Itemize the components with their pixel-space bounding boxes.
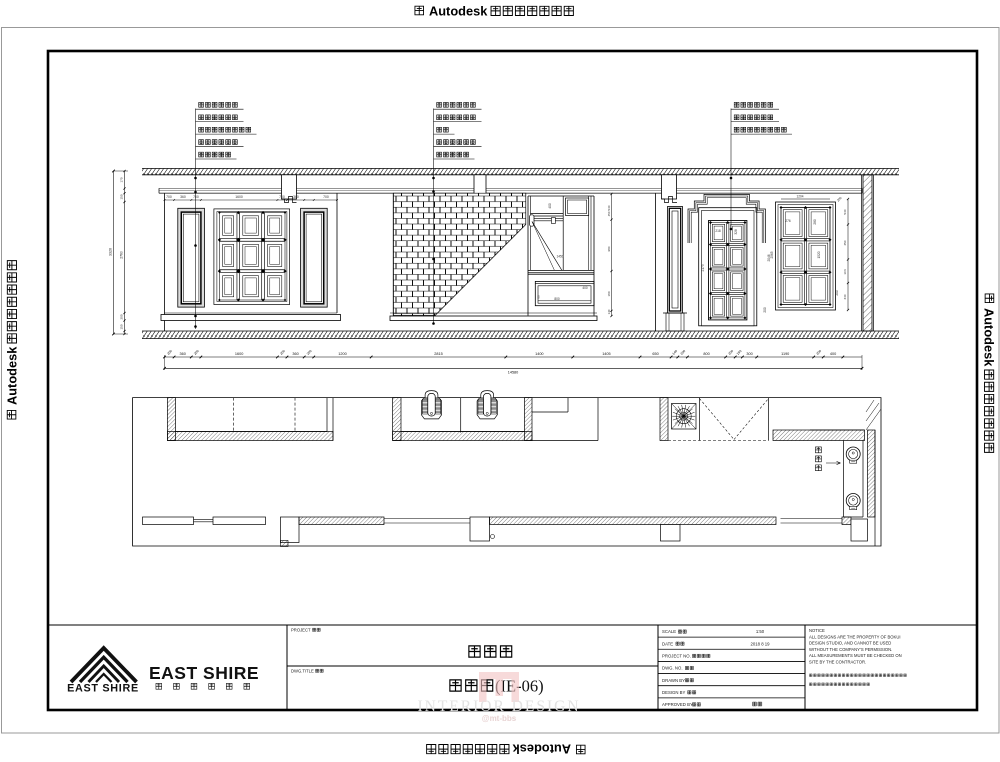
svg-text:200: 200 <box>727 349 734 356</box>
svg-text:200: 200 <box>815 349 822 356</box>
svg-text:DATE: DATE <box>662 641 673 646</box>
svg-text:ALL DESIGNS ARE THE PROPERTY O: ALL DESIGNS ARE THE PROPERTY OF BOKUI <box>809 634 901 639</box>
svg-text:700: 700 <box>166 195 172 199</box>
svg-text:200: 200 <box>835 290 839 296</box>
svg-text:Autodesk: Autodesk <box>5 346 20 405</box>
svg-text:276: 276 <box>785 219 791 223</box>
svg-text:150: 150 <box>120 324 124 329</box>
svg-text:WITHOUT THE COMPANY’S PERMISSI: WITHOUT THE COMPANY’S PERMISSION. <box>809 647 892 652</box>
svg-text:ALL MEASUREMENTS MUST BE CHECK: ALL MEASUREMENTS MUST BE CHECKED ON <box>809 653 902 658</box>
svg-text:218: 218 <box>715 229 721 233</box>
svg-text:150: 150 <box>120 194 124 199</box>
svg-text:700: 700 <box>193 195 199 199</box>
svg-text:1200: 1200 <box>338 352 346 356</box>
svg-text:200: 200 <box>193 349 200 356</box>
svg-text:200: 200 <box>763 307 767 313</box>
svg-text:800: 800 <box>703 352 709 356</box>
svg-text:180: 180 <box>607 291 611 296</box>
svg-text:2760: 2760 <box>120 251 124 259</box>
svg-text:2565: 2565 <box>770 251 774 258</box>
svg-text:1600: 1600 <box>235 352 243 356</box>
svg-text:540: 540 <box>843 209 847 214</box>
svg-text:INTERIOR DESIGN: INTERIOR DESIGN <box>417 698 580 715</box>
svg-text:APPROVED BY: APPROVED BY <box>662 702 693 707</box>
svg-text:1204: 1204 <box>796 195 803 199</box>
svg-text:SCALE: SCALE <box>662 629 676 634</box>
svg-text:650: 650 <box>652 352 658 356</box>
svg-text:400: 400 <box>830 352 836 356</box>
svg-text:1190: 1190 <box>781 352 789 356</box>
svg-text:1520: 1520 <box>817 251 821 258</box>
svg-text:540: 540 <box>607 205 611 210</box>
svg-text:200: 200 <box>166 349 173 356</box>
svg-text:200: 200 <box>836 196 843 203</box>
svg-text:140: 140 <box>671 349 678 356</box>
svg-text:14580: 14580 <box>508 370 519 374</box>
svg-text:980: 980 <box>607 246 611 251</box>
svg-text:PROJECT NO.: PROJECT NO. <box>662 653 691 658</box>
svg-text:300: 300 <box>746 352 752 356</box>
svg-text:2018 8 19: 2018 8 19 <box>750 641 770 646</box>
svg-text:DWG.TITLE: DWG.TITLE <box>291 669 314 674</box>
svg-text:700: 700 <box>323 195 329 199</box>
svg-text:200: 200 <box>680 349 687 356</box>
svg-text:80: 80 <box>537 295 541 299</box>
svg-text:1400: 1400 <box>535 352 543 356</box>
svg-text:Autodesk: Autodesk <box>512 741 571 756</box>
svg-text:DESIGN STUDIO, AND CANNOT BE U: DESIGN STUDIO, AND CANNOT BE USED <box>809 641 891 646</box>
svg-text:200: 200 <box>120 314 124 319</box>
svg-text:2173: 2173 <box>701 264 705 271</box>
svg-text:DWG. NO.: DWG. NO. <box>662 666 683 671</box>
svg-text:SITE BY THE CONTRACTOR.: SITE BY THE CONTRACTOR. <box>809 660 866 665</box>
svg-text:3320: 3320 <box>109 248 113 256</box>
svg-text:140: 140 <box>607 309 611 314</box>
svg-text:400: 400 <box>582 286 588 290</box>
svg-text:450: 450 <box>843 240 847 245</box>
svg-text:700: 700 <box>279 195 285 199</box>
svg-text:400: 400 <box>548 203 552 209</box>
svg-text:280: 280 <box>813 219 817 225</box>
svg-text:328: 328 <box>734 229 738 235</box>
svg-text:1405: 1405 <box>602 352 610 356</box>
svg-text:170: 170 <box>120 177 124 182</box>
svg-text:450: 450 <box>607 211 611 216</box>
svg-text:EAST SHIRE: EAST SHIRE <box>67 683 139 695</box>
svg-text:DRAWN BY: DRAWN BY <box>662 678 685 683</box>
svg-text:1450: 1450 <box>556 255 563 259</box>
svg-text:360: 360 <box>180 195 186 199</box>
svg-text:@mt-bbs: @mt-bbs <box>482 714 517 723</box>
svg-text:800: 800 <box>554 297 560 301</box>
svg-text:340: 340 <box>843 294 847 299</box>
svg-text:Autodesk: Autodesk <box>429 4 488 19</box>
svg-text:360: 360 <box>292 352 298 356</box>
svg-text:1:50: 1:50 <box>756 629 765 634</box>
svg-text:NOTICE: NOTICE <box>809 628 825 633</box>
svg-text:360: 360 <box>293 195 299 199</box>
svg-text:Autodesk: Autodesk <box>981 308 996 367</box>
svg-text:PROJECT: PROJECT <box>291 628 311 633</box>
svg-text:200: 200 <box>279 349 286 356</box>
svg-text:2815: 2815 <box>434 352 442 356</box>
svg-text:103: 103 <box>843 269 847 274</box>
svg-text:DESIGN BY: DESIGN BY <box>662 690 686 695</box>
svg-text:200: 200 <box>306 349 313 356</box>
svg-text:150: 150 <box>736 349 743 356</box>
svg-text:EAST SHIRE: EAST SHIRE <box>149 663 259 683</box>
svg-text:360: 360 <box>180 352 186 356</box>
svg-text:1600: 1600 <box>235 195 243 199</box>
